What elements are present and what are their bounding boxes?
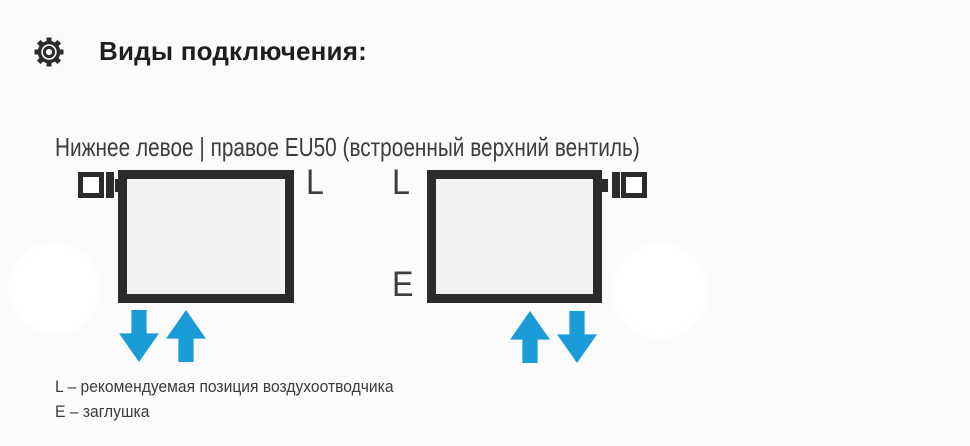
air-vent-label-right: L (392, 167, 410, 199)
flow-arrow-up-icon (510, 311, 550, 363)
background-spot (8, 243, 100, 335)
flow-arrow-down-icon (119, 310, 159, 362)
flow-arrow-down-icon (557, 311, 597, 363)
valve-fitting-left-square (78, 172, 104, 198)
valve-fitting-right-bar (612, 172, 620, 198)
page-title: Виды подключения: (99, 36, 367, 67)
legend: L – рекомендуемая позиция воздухоотводчи… (55, 374, 394, 424)
plug-label-right: E (392, 269, 413, 301)
valve-fitting-right-square (621, 172, 647, 198)
legend-line-air-vent: L – рекомендуемая позиция воздухоотводчи… (55, 374, 394, 399)
flow-arrow-up-icon (166, 310, 206, 362)
connection-types-infographic: Виды подключения: Нижнее левое | правое … (0, 0, 970, 446)
radiator-body-right (427, 170, 602, 303)
valve-fitting-right-nub (601, 179, 608, 192)
background-spot (612, 243, 708, 339)
connection-subtitle: Нижнее левое | правое EU50 (встроенный в… (55, 132, 640, 163)
air-vent-label-left: L (306, 167, 324, 199)
valve-fitting-left-bar (106, 172, 114, 198)
legend-line-plug: E – заглушка (55, 399, 394, 424)
radiator-body-left (118, 170, 294, 303)
valve-fitting-left-nub (115, 179, 122, 192)
gear-icon (31, 34, 67, 70)
